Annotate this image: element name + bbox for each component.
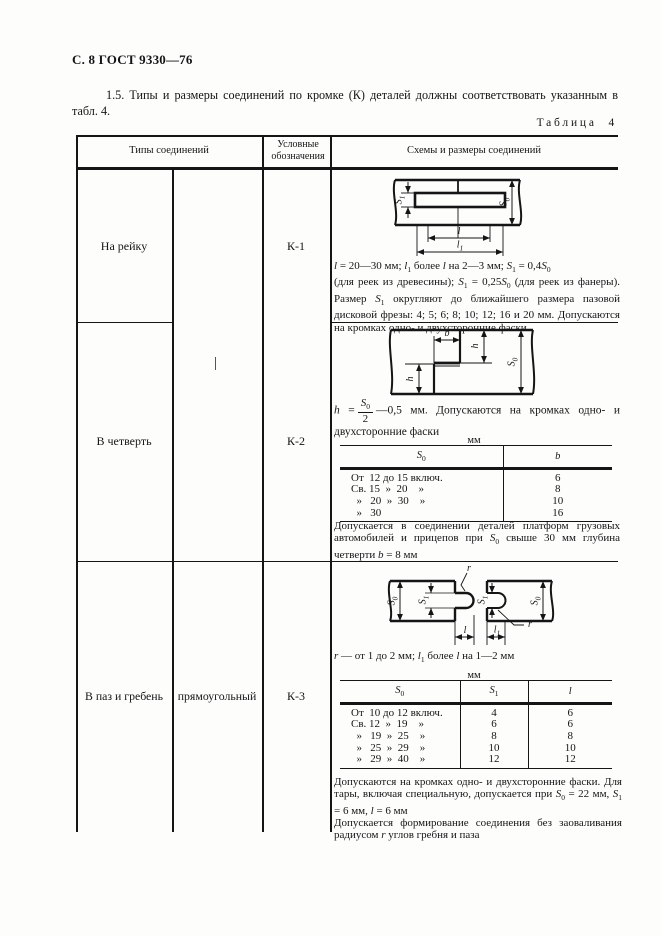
- k3-dim-label-s1-right: S1: [477, 596, 489, 605]
- document-page: С. 8 ГОСТ 9330—76 1.5. Типы и размеры со…: [0, 0, 661, 936]
- table-row: » 19 » 25 » 8 8: [340, 731, 612, 743]
- table-row: От 12 до 15 включ. 6: [340, 469, 612, 485]
- k2-dim-label-b: b: [445, 329, 450, 339]
- k3-dim-label-s1-left: S1: [418, 596, 430, 605]
- designation-label-1: К-1: [262, 170, 330, 322]
- value-cell: 6: [528, 704, 612, 720]
- joint-type-label-1: На рейку: [76, 170, 172, 322]
- k2-formula: h =S02—0,5 мм. Допускаются на кромках од…: [334, 397, 620, 439]
- table-row: От 10 до 12 включ. 4 6: [340, 704, 612, 720]
- range-cell: » 19 » 25 »: [340, 731, 460, 743]
- joint-type-label-3: В паз и гребень: [76, 561, 172, 832]
- k2-formula-rhs: —0,5 мм. Допускаются на кромках одно- и …: [334, 405, 620, 438]
- joint-subtype-label-3: прямоугольный: [172, 561, 262, 832]
- range-cell: От 12 до 15 включ.: [340, 469, 503, 485]
- k1-dim-label-l1: l1: [457, 240, 464, 252]
- value-cell: 8: [460, 731, 528, 743]
- value-cell: 10: [503, 496, 612, 508]
- k3-table-header-l: l: [528, 681, 612, 704]
- joint-type-label-2: В четверть: [76, 322, 172, 561]
- k3-radius-note: r — от 1 до 2 мм; l1 более l на 1—2 мм: [334, 650, 620, 666]
- k2-table-header-s0: S0: [340, 446, 503, 469]
- k1-note-text: l = 20—30 мм; l1 более l на 2—3 мм; S1 =…: [334, 260, 620, 334]
- table-row: » 20 » 30 » 10: [340, 496, 612, 508]
- value-cell: 12: [460, 754, 528, 768]
- k3-dim-label-r-top: r: [467, 564, 471, 574]
- range-cell: От 10 до 12 включ.: [340, 704, 460, 720]
- code-scheme-divider: [330, 135, 332, 832]
- k3-dim-label-s0-left: S0: [387, 597, 399, 606]
- designation-label-2: К-2: [262, 322, 330, 561]
- range-cell: » 29 » 40 »: [340, 754, 460, 768]
- k3-dim-label-s0-right: S0: [530, 597, 542, 606]
- joints-table: Типы соединений Условные обозначения Схе…: [76, 135, 618, 835]
- value-cell: 8: [528, 731, 612, 743]
- page-header: С. 8 ГОСТ 9330—76: [72, 52, 193, 68]
- k3-scheme-diagram: S0 S1 r S1 r S0 l l1: [378, 565, 563, 650]
- range-cell: » 20 » 30 »: [340, 496, 503, 508]
- k2-table-header-b: b: [503, 446, 612, 469]
- k3-dim-label-l: l: [464, 626, 467, 636]
- k2-formula-lhs: h =: [334, 405, 355, 417]
- column-header-schemes: Схемы и размеры соединений: [330, 135, 618, 167]
- k2-formula-numerator: S0: [358, 397, 373, 413]
- scan-artifact-tick: [215, 357, 216, 370]
- k2-formula-fraction: S02: [358, 397, 373, 425]
- table-caption: Таблица 4: [537, 117, 617, 129]
- k2-dimension-table: S0 b От 12 до 15 включ. 6 Св. 15 » 20 » …: [340, 445, 612, 522]
- k2-note-text: Допускается в соединении деталей платфор…: [334, 520, 620, 561]
- k1-scheme-diagram: S1 S0 l l1: [384, 176, 534, 261]
- table-row: » 29 » 40 » 12 12: [340, 754, 612, 768]
- k3-table-header-s1: S1: [460, 681, 528, 704]
- value-cell: 12: [528, 754, 612, 768]
- k1-dim-label-s0: S0: [499, 198, 511, 207]
- column-header-designation: Условные обозначения: [262, 135, 334, 167]
- k3-notes-text: Допускаются на кромках одно- и двухсторо…: [334, 776, 622, 842]
- k3-table-header-s0: S0: [340, 681, 460, 704]
- column-header-types: Типы соединений: [76, 135, 262, 167]
- k1-dim-label-l: l: [458, 227, 461, 237]
- k2-formula-denominator: 2: [358, 413, 373, 425]
- k2-dim-label-h-top: h: [471, 344, 481, 349]
- designation-label-3: К-3: [262, 561, 330, 832]
- k3-scheme-drawing: [378, 565, 563, 650]
- k3-dim-label-r-right: r: [528, 620, 532, 630]
- value-cell: 6: [503, 469, 612, 485]
- k3-dimension-table: S0 S1 l От 10 до 12 включ. 4 6 Св. 12 » …: [340, 680, 612, 769]
- k3-dim-label-l1: l1: [494, 625, 501, 637]
- k2-dim-label-h-bottom: h: [406, 377, 416, 382]
- k1-dim-label-s1: S1: [394, 196, 406, 205]
- intro-paragraph: 1.5. Типы и размеры соединений по кромке…: [72, 88, 618, 119]
- value-cell: 4: [460, 704, 528, 720]
- k2-scheme-diagram: b h S0 h: [388, 328, 538, 398]
- k2-dim-label-s0: S0: [507, 358, 519, 367]
